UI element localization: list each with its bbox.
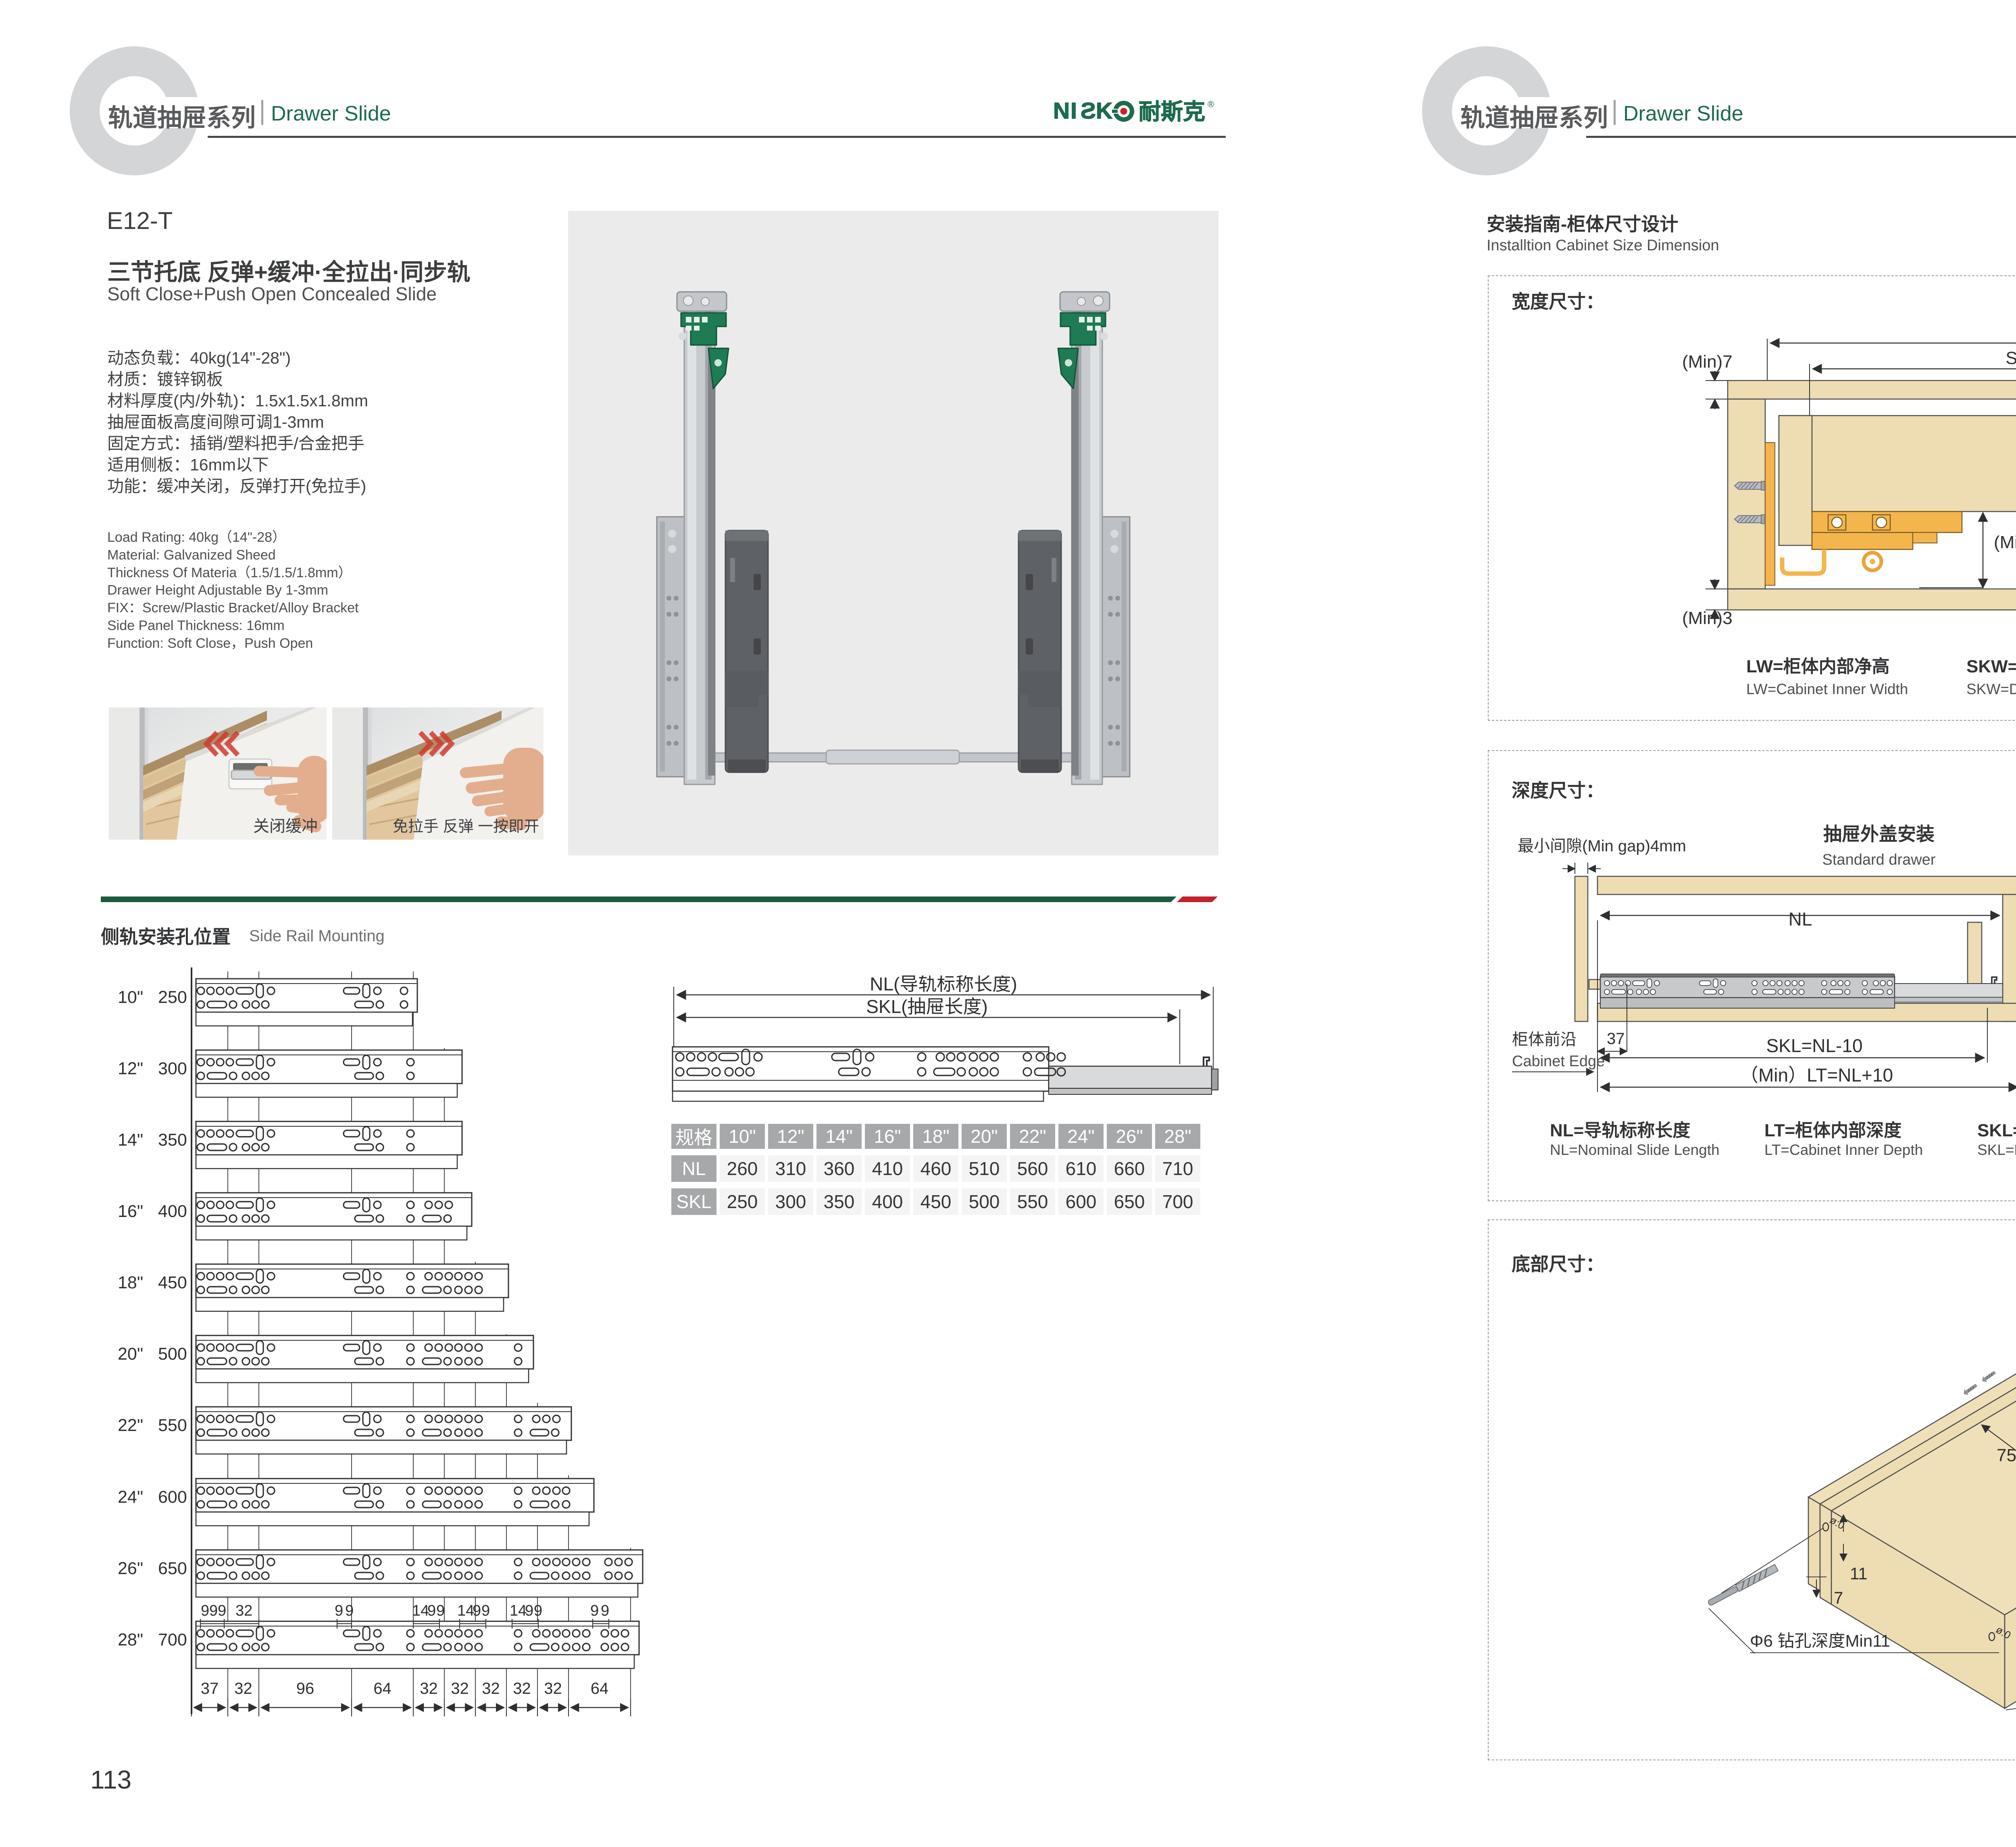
svg-text:28": 28"	[118, 1630, 143, 1649]
svg-text:®: ®	[1208, 99, 1214, 109]
svg-text:SKW=Drawer Width: SKW=Drawer Width	[1966, 681, 2016, 697]
svg-text:SKW=抽屉宽度: SKW=抽屉宽度	[1966, 657, 2016, 676]
svg-text:650: 650	[158, 1559, 187, 1578]
svg-text:26": 26"	[118, 1559, 143, 1578]
svg-text:9: 9	[209, 1602, 218, 1619]
svg-text:SKL(抽屉长度): SKL(抽屉长度)	[866, 996, 988, 1017]
svg-text:柜体前沿: 柜体前沿	[1512, 1031, 1577, 1048]
svg-text:32: 32	[544, 1680, 562, 1697]
svg-text:300: 300	[158, 1059, 187, 1078]
svg-text:450: 450	[158, 1273, 187, 1292]
svg-text:9: 9	[201, 1602, 209, 1619]
svg-text:250: 250	[158, 988, 187, 1007]
svg-text:9: 9	[525, 1602, 533, 1619]
svg-text:NL: NL	[1789, 909, 1812, 930]
svg-text:10": 10"	[118, 988, 143, 1007]
svg-text:LW=Cabinet Inner Width: LW=Cabinet Inner Width	[1746, 681, 1908, 697]
svg-text:9: 9	[427, 1602, 436, 1619]
svg-text:抽屉外盖安装: 抽屉外盖安装	[1823, 824, 1935, 844]
svg-text:14: 14	[412, 1602, 429, 1619]
svg-text:9: 9	[345, 1602, 354, 1619]
svg-text:14": 14"	[118, 1130, 143, 1150]
svg-text:9: 9	[335, 1602, 343, 1619]
svg-text:64: 64	[373, 1680, 392, 1697]
svg-text:14: 14	[457, 1602, 474, 1619]
svg-text:Cabinet Edge: Cabinet Edge	[1512, 1053, 1605, 1070]
svg-text:耐斯克: 耐斯克	[1139, 99, 1205, 124]
svg-text:9: 9	[436, 1602, 445, 1619]
svg-text:9: 9	[218, 1602, 226, 1619]
svg-text:SKL=NL-10: SKL=NL-10	[1766, 1035, 1862, 1056]
svg-text:350: 350	[158, 1130, 187, 1150]
svg-text:14: 14	[510, 1602, 527, 1619]
svg-text:600: 600	[158, 1487, 187, 1507]
svg-text:32: 32	[420, 1680, 438, 1697]
svg-text:11: 11	[1850, 1564, 1868, 1583]
svg-text:32: 32	[513, 1680, 531, 1697]
svg-text:免拉手 反弹 一按即开: 免拉手 反弹 一按即开	[393, 818, 539, 835]
svg-text:24": 24"	[118, 1487, 143, 1507]
svg-text:9: 9	[473, 1602, 481, 1619]
svg-text:96: 96	[296, 1680, 314, 1697]
svg-text:(Min)3: (Min)3	[1682, 608, 1733, 628]
svg-text:550: 550	[158, 1416, 187, 1435]
svg-text:9: 9	[481, 1602, 490, 1619]
svg-text:NL(导轨标称长度): NL(导轨标称长度)	[870, 975, 1017, 994]
svg-text:37: 37	[1607, 1030, 1625, 1048]
svg-text:(Min)7: (Min)7	[1682, 352, 1733, 372]
svg-text:9: 9	[601, 1602, 609, 1619]
svg-text:(Min)27.5: (Min)27.5	[1994, 532, 2016, 552]
svg-text:37: 37	[201, 1680, 219, 1697]
svg-text:K: K	[1096, 98, 1112, 124]
svg-text:最小间隙(Min gap)4mm: 最小间隙(Min gap)4mm	[1518, 837, 1686, 855]
svg-text:18": 18"	[118, 1273, 143, 1292]
svg-text:9: 9	[534, 1602, 542, 1619]
svg-text:32: 32	[235, 1602, 252, 1619]
svg-text:500: 500	[158, 1344, 187, 1364]
svg-text:400: 400	[158, 1202, 187, 1221]
svg-text:（Min）LT=NL+10: （Min）LT=NL+10	[1740, 1065, 1893, 1086]
svg-text:64: 64	[591, 1680, 609, 1697]
svg-text:22": 22"	[118, 1416, 143, 1435]
svg-text:700: 700	[158, 1630, 187, 1649]
svg-text:Standard drawer: Standard drawer	[1822, 851, 1936, 868]
svg-text:LW=柜体内部净高: LW=柜体内部净高	[1746, 657, 1890, 676]
svg-text:32: 32	[451, 1680, 469, 1697]
svg-text:7: 7	[1834, 1588, 1843, 1607]
svg-text:SKW=LW-42: SKW=LW-42	[2006, 348, 2016, 368]
svg-text:32: 32	[482, 1680, 500, 1697]
svg-text:16": 16"	[118, 1202, 143, 1221]
svg-text:Φ6 钻孔深度Min11: Φ6 钻孔深度Min11	[1750, 1631, 1890, 1650]
svg-text:NI: NI	[1053, 98, 1078, 124]
svg-text:S: S	[1081, 98, 1096, 124]
svg-text:32: 32	[234, 1680, 252, 1697]
svg-text:9: 9	[590, 1602, 599, 1619]
svg-text:关闭缓冲: 关闭缓冲	[253, 817, 318, 835]
svg-text:12": 12"	[118, 1059, 143, 1078]
svg-text:20": 20"	[118, 1344, 143, 1364]
